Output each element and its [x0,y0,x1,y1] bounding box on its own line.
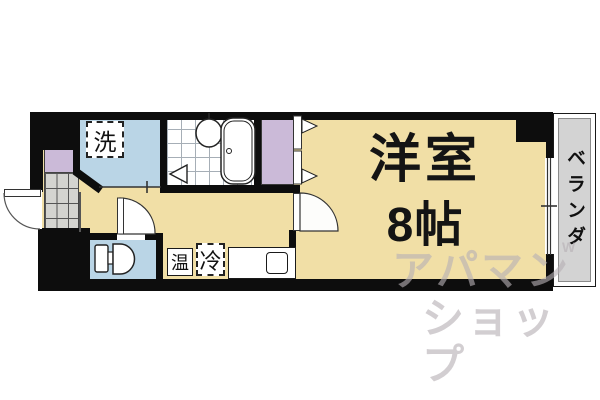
mainroom-size: 8帖 [387,202,464,250]
mainroom-label: 洋室 8帖 [330,134,520,250]
toilet-icon [92,240,144,280]
wall-toilet-east [156,233,163,281]
floorplan-canvas: 洗 温 冷 洋室 8帖 ベランダ アパマン W ショップ [0,0,600,400]
washer-label: 洗 [94,123,117,157]
closet [261,117,294,185]
wall-right-upper [546,112,553,158]
kitchen-sink-icon [266,252,288,274]
refrigerator-space-box: 冷 [196,243,225,276]
washer-space-box: 洗 [86,121,124,158]
watermark-line1: アパマン [392,247,571,294]
washroom-sliding-door-icon [98,180,162,194]
water-heater-box: 温 [167,248,193,276]
sink-icon [196,113,222,147]
bathroom-fixtures [167,110,257,188]
entrance-door-swing-icon [2,189,44,233]
closet-doors-icon [293,114,319,186]
balcony-label: ベランダ [561,148,588,252]
cold-label: 冷 [199,244,221,276]
bath-folding-door-icon [170,165,187,183]
wall-bottomleft-block [38,228,90,285]
genkan-step-line [79,192,81,232]
balcony-window-icon [540,158,558,255]
wall-top [30,112,553,120]
watermark-mark: W [562,240,575,255]
watermark-line2: ショップ [422,296,592,388]
hot-label: 温 [171,249,189,275]
watermark-logo: アパマン W ショップ [392,248,592,389]
mainroom-name: 洋室 [369,134,481,186]
wall-bath-west [160,112,167,189]
toilet-door-swing-icon [117,197,157,235]
bathtub-icon [221,118,255,184]
wall-left [30,112,43,192]
